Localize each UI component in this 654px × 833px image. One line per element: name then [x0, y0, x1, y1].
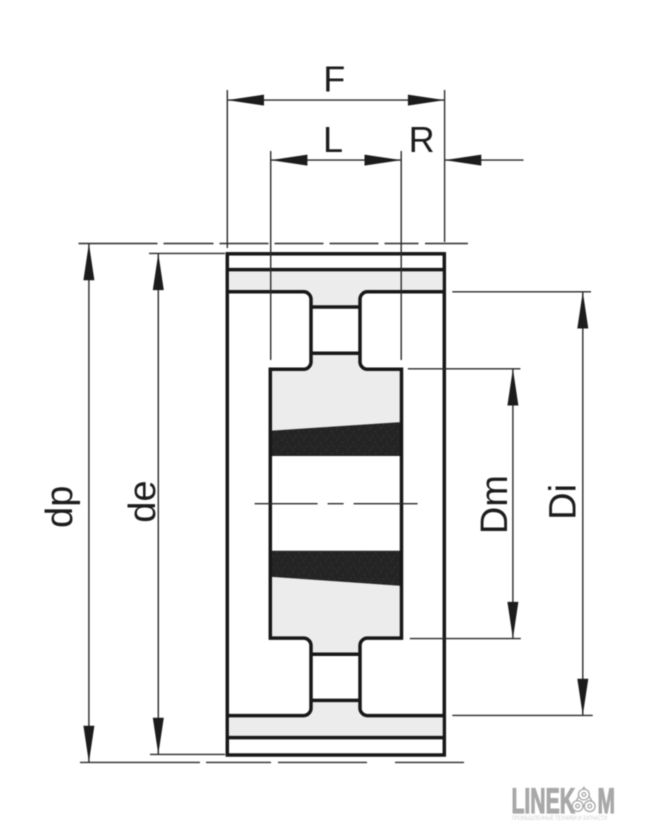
svg-text:dp: dp: [39, 486, 81, 528]
svg-text:R: R: [409, 119, 435, 160]
svg-text:L: L: [323, 119, 343, 160]
svg-text:Di: Di: [543, 484, 585, 520]
svg-text:Dm: Dm: [474, 475, 516, 534]
svg-text:F: F: [323, 59, 345, 100]
svg-text:de: de: [122, 480, 164, 522]
svg-text:ПРОМЫШЛЕННЫЕ ТЕХНИКИ И ЗАПЧАСТ: ПРОМЫШЛЕННЫЕ ТЕХНИКИ И ЗАПЧАСТИ: [512, 815, 607, 822]
